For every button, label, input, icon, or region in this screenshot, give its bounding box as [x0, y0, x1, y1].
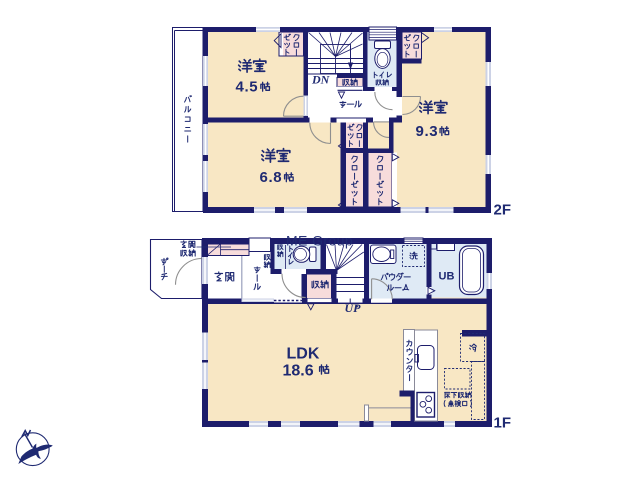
svg-text:UP: UP	[345, 301, 362, 315]
svg-text:9.3: 9.3	[416, 123, 439, 140]
svg-text:4.5: 4.5	[236, 79, 259, 96]
svg-text:LDK: LDK	[287, 346, 320, 363]
svg-text:UB: UB	[439, 271, 455, 283]
svg-text:6.8: 6.8	[260, 169, 283, 186]
svg-text:1F: 1F	[494, 415, 512, 432]
svg-text:ME Group: ME Group	[286, 233, 353, 249]
svg-text:18.6: 18.6	[283, 363, 314, 380]
svg-text:DN: DN	[311, 73, 331, 87]
svg-text:2F: 2F	[494, 202, 512, 219]
